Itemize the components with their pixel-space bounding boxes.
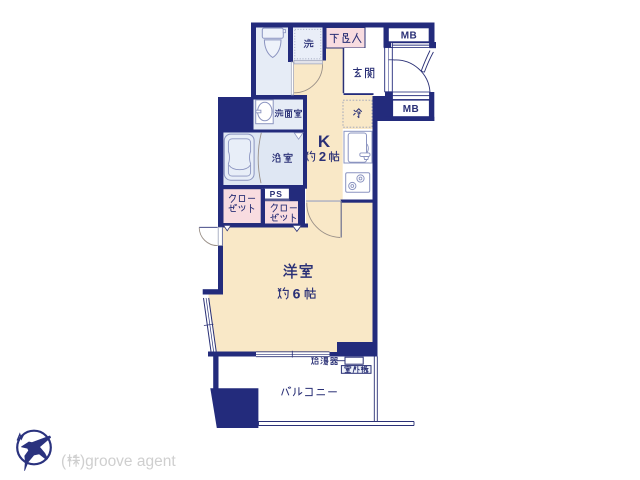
- svg-text:6: 6: [293, 286, 301, 302]
- svg-text:MB: MB: [401, 31, 418, 42]
- svg-text:MB: MB: [403, 104, 420, 115]
- svg-text:PS: PS: [270, 189, 283, 199]
- svg-text:2: 2: [319, 149, 326, 164]
- svg-text:)groove agent: )groove agent: [80, 453, 176, 470]
- svg-text:(: (: [61, 453, 67, 470]
